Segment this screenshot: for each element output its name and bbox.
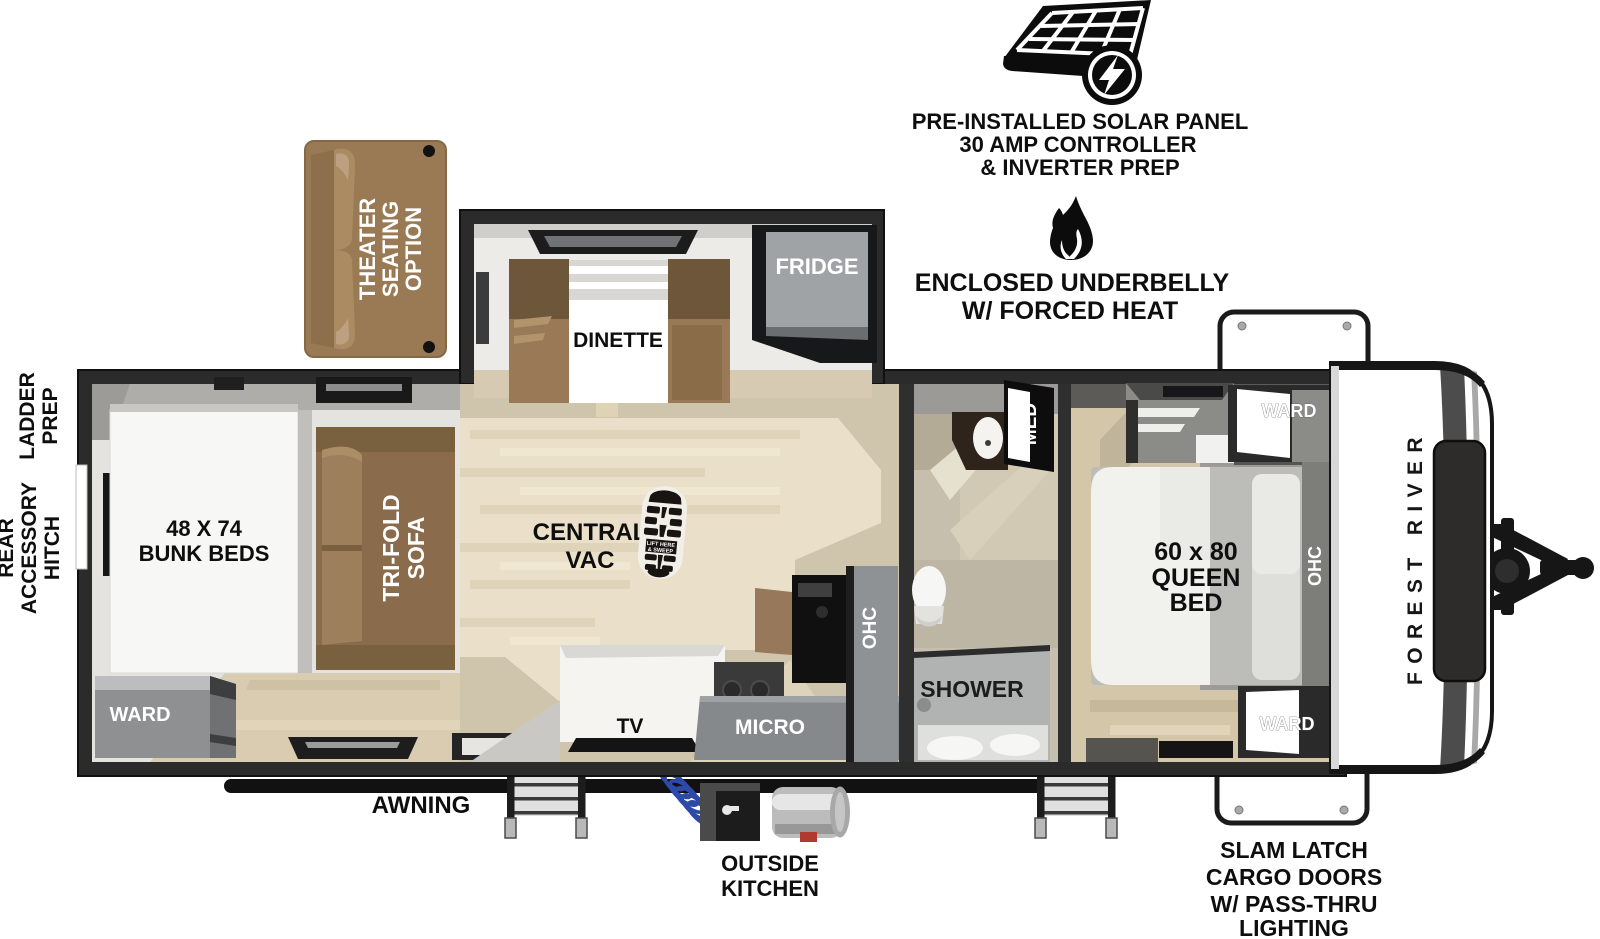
svg-text:LADDER: LADDER [16, 372, 39, 460]
svg-text:QUEEN: QUEEN [1152, 564, 1241, 592]
svg-text:OPTION: OPTION [401, 207, 426, 291]
svg-text:AWNING: AWNING [372, 792, 471, 819]
svg-text:DINETTE: DINETTE [573, 329, 663, 352]
svg-text:WARD: WARD [1260, 714, 1315, 734]
svg-text:MED: MED [1020, 403, 1041, 445]
svg-text:KITCHEN: KITCHEN [721, 876, 819, 901]
svg-text:SLAM LATCH: SLAM LATCH [1220, 837, 1368, 863]
svg-text:ENCLOSED UNDERBELLY: ENCLOSED UNDERBELLY [915, 269, 1230, 297]
svg-text:SEATING: SEATING [378, 201, 403, 297]
svg-text:SHOWER: SHOWER [920, 676, 1024, 702]
svg-text:ACCESSORY: ACCESSORY [18, 482, 41, 614]
svg-text:PRE-INSTALLED SOLAR PANEL: PRE-INSTALLED SOLAR PANEL [912, 109, 1249, 134]
svg-text:MICRO: MICRO [735, 716, 805, 739]
svg-text:SOFA: SOFA [403, 517, 429, 580]
svg-text:WARD: WARD [109, 704, 170, 726]
svg-text:W/ FORCED HEAT: W/ FORCED HEAT [962, 297, 1178, 325]
svg-text:OUTSIDE: OUTSIDE [721, 851, 819, 876]
svg-text:VAC: VAC [566, 547, 615, 574]
svg-text:BED: BED [1170, 589, 1223, 617]
svg-text:30 AMP CONTROLLER: 30 AMP CONTROLLER [959, 132, 1196, 157]
svg-text:BUNK BEDS: BUNK BEDS [139, 541, 270, 566]
svg-text:FRIDGE: FRIDGE [775, 254, 858, 279]
svg-text:PREP: PREP [39, 387, 62, 444]
svg-text:OHC: OHC [860, 607, 881, 650]
svg-text:W/ PASS-THRU: W/ PASS-THRU [1211, 891, 1378, 917]
svg-text:HITCH: HITCH [41, 516, 64, 580]
svg-text:48 X 74: 48 X 74 [166, 516, 243, 541]
svg-text:CENTRAL: CENTRAL [533, 519, 648, 546]
svg-text:LIGHTING: LIGHTING [1239, 915, 1349, 939]
svg-text:WARD: WARD [1262, 401, 1317, 421]
svg-text:60 x 80: 60 x 80 [1154, 538, 1237, 566]
svg-text:& INVERTER PREP: & INVERTER PREP [980, 155, 1179, 180]
svg-text:FOREST RIVER: FOREST RIVER [1404, 429, 1427, 685]
svg-text:THEATER: THEATER [355, 198, 380, 300]
svg-text:REAR: REAR [0, 518, 18, 578]
svg-text:CARGO DOORS: CARGO DOORS [1206, 864, 1382, 890]
svg-text:TRI-FOLD: TRI-FOLD [378, 494, 404, 601]
svg-text:TV: TV [617, 715, 644, 738]
svg-text:OHC: OHC [1305, 546, 1325, 586]
